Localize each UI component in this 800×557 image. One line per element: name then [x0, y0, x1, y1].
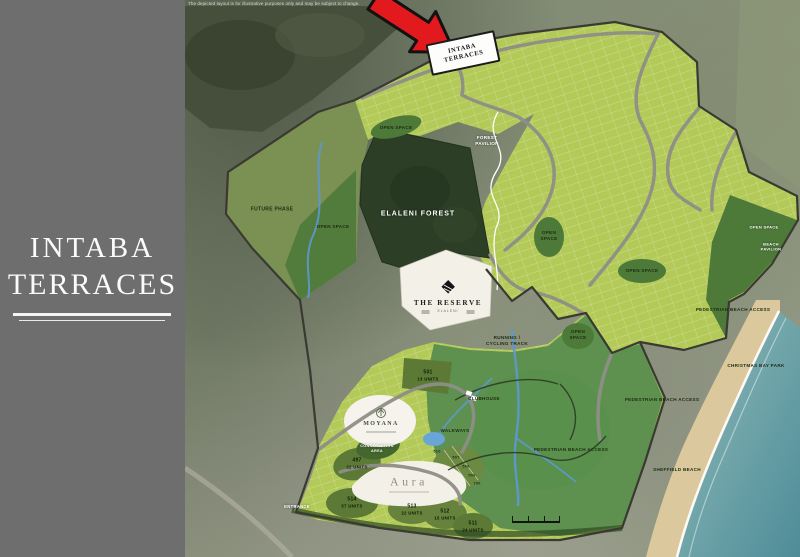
label-pedestrian-access-south: PEDESTRIAN BEACH ACCESS	[534, 447, 608, 453]
plot-700: 700	[473, 481, 480, 486]
label-beach-pavilion-l2: PAVILION	[761, 247, 782, 252]
brand-panel: INTABA TERRACES	[0, 0, 185, 557]
label-open-space-mid2: OPEN SPACE	[626, 268, 659, 274]
plot-514-number: 514	[341, 497, 362, 504]
label-pedestrian-access-mid: PEDESTRIAN BEACH ACCESS	[625, 397, 699, 403]
label-open-space-mid1: OPEN SPACE	[537, 230, 561, 242]
plot-501-number: 501	[417, 370, 438, 377]
aura-subtitle-rule	[389, 492, 429, 493]
label-reserve-subtitle: ELALENI	[422, 310, 475, 314]
label-open-space-top: OPEN SPACE	[380, 125, 413, 131]
label-forest-pavilion: FOREST PAVILION	[475, 135, 498, 147]
label-the-reserve: THE RESERVE	[414, 299, 482, 307]
plot-497-units: 22 UNITS	[346, 464, 367, 470]
plot-511-units: 24 UNITS	[462, 527, 483, 533]
label-forest-pavilion-l2: PAVILION	[475, 141, 498, 147]
label-conservation-area: CONSERVATION AREA	[360, 444, 394, 454]
plot-513-number: 513	[401, 504, 422, 511]
plot-508: 508	[462, 464, 469, 469]
plot-513-units: 22 UNITS	[401, 510, 422, 516]
label-running-track-l2: CYCLING TRACK	[486, 341, 528, 347]
plot-509: 509	[468, 473, 475, 478]
label-walkways: WALKWAYS	[440, 428, 469, 434]
map-disclaimer: The depicted layout is for illustrative …	[188, 1, 378, 6]
scale-tick	[559, 516, 560, 523]
label-beach-pavilion: BEACH PAVILION	[761, 242, 782, 253]
label-christmas-bay-park: CHRISTMAS BAY PARK	[727, 363, 784, 369]
scale-bar-line	[512, 521, 560, 523]
brand-rule-thin	[19, 320, 165, 321]
brand-rule-thick	[13, 313, 171, 316]
plot-512-units: 15 UNITS	[434, 515, 455, 521]
label-open-space-right: OPEN SPACE	[750, 224, 779, 229]
plot-512: 512 15 UNITS	[434, 509, 455, 522]
scale-tick	[544, 516, 545, 523]
scale-bar	[512, 516, 560, 524]
label-elaleni-forest: ELALENI FOREST	[381, 209, 455, 218]
scale-tick	[512, 516, 513, 523]
brand-line1: INTABA	[30, 230, 155, 266]
plot-510: 510	[433, 449, 440, 454]
label-moyana: MOYANA	[363, 421, 399, 427]
plot-511-number: 511	[462, 521, 483, 528]
plot-501: 501 13 UNITS	[417, 370, 438, 383]
label-future-phase: FUTURE PHASE	[251, 207, 294, 214]
plot-497: 497 22 UNITS	[346, 458, 367, 471]
label-running-track: RUNNING / CYCLING TRACK	[486, 335, 528, 347]
label-open-space-left: OPEN SPACE	[317, 224, 350, 230]
plot-514-units: 57 UNITS	[341, 503, 362, 509]
plot-497-number: 497	[346, 458, 367, 465]
scale-tick	[528, 516, 529, 523]
label-pedestrian-access-north: PEDESTRIAN BEACH ACCESS	[696, 307, 770, 313]
brand-title: INTABA TERRACES	[8, 230, 177, 321]
label-clubhouse: CLUBHOUSE	[468, 396, 500, 402]
plot-512-number: 512	[434, 509, 455, 516]
label-entrance: ENTRANCE	[284, 504, 310, 510]
moyana-subtitle-rule	[366, 432, 396, 433]
plot-501-units: 13 UNITS	[417, 376, 438, 382]
masterplan-screenshot: The depicted layout is for illustrative …	[0, 0, 800, 557]
plot-513: 513 22 UNITS	[401, 504, 422, 517]
plot-514: 514 57 UNITS	[341, 497, 362, 510]
brand-line2: TERRACES	[8, 266, 177, 304]
plot-511: 511 24 UNITS	[462, 521, 483, 534]
label-aura: Aura	[390, 475, 428, 490]
label-conservation-l2: AREA	[360, 449, 394, 454]
aerial-map	[185, 0, 800, 557]
label-sheffield-beach: SHEFFIELD BEACH	[653, 467, 701, 473]
label-open-space-mid3: OPEN SPACE	[566, 329, 590, 341]
plot-507: 507	[452, 455, 459, 460]
